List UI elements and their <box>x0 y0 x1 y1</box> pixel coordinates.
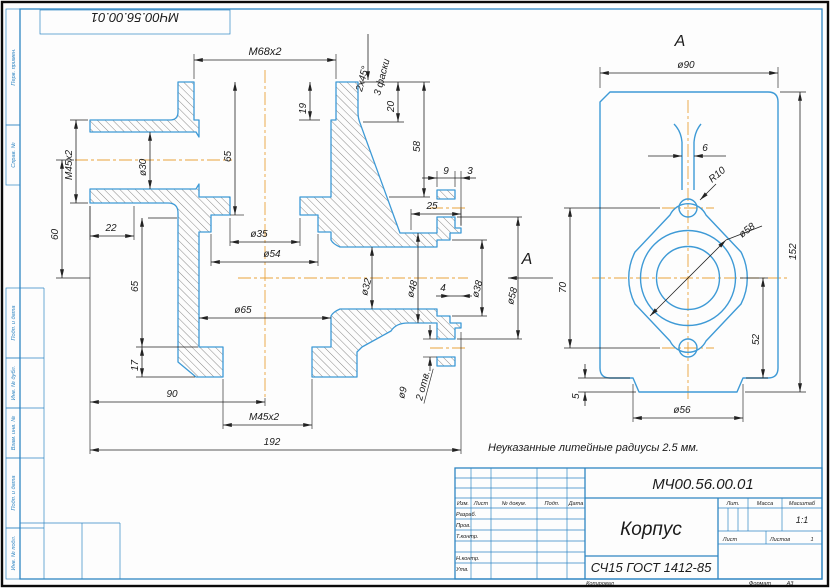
tb-scale-value: 1:1 <box>796 515 809 525</box>
stamp-doc-number: МЧ00.56.00.01 <box>91 10 179 25</box>
margin-label-podp-data-2: Подп. и дата <box>11 475 17 510</box>
tb-tkontr: Т.контр. <box>456 534 479 540</box>
dim-text-25: 25 <box>425 201 438 212</box>
tb-format-value: А3 <box>786 581 795 587</box>
dim-text-60: 60 <box>50 228 61 240</box>
tb-part-name: Корпус <box>620 519 682 540</box>
dim-text-m68x2: M68x2 <box>248 46 281 58</box>
dim-text-58: 58 <box>412 140 423 152</box>
dim-text-3: 3 <box>467 166 473 177</box>
dim-text-6: 6 <box>702 143 708 154</box>
tb-massa: Масса <box>757 501 774 507</box>
dim-text-d54: ø54 <box>263 249 281 260</box>
dim-text-d30: ø30 <box>138 158 149 176</box>
dim-text-65-low: 65 <box>130 280 141 292</box>
section-label-a: А <box>521 251 533 268</box>
margin-label-sprav-no: Справ. № <box>11 142 17 167</box>
dim-text-192: 192 <box>264 437 281 448</box>
tb-sheet: Лист <box>722 537 738 543</box>
dim-text-9: 9 <box>443 166 449 177</box>
dim-text-17: 17 <box>130 359 141 371</box>
dim-text-d90: ø90 <box>677 60 695 71</box>
dim-text-d56: ø56 <box>673 405 691 416</box>
tb-sheets: Листов <box>769 537 790 543</box>
dim-text-d65: ø65 <box>234 305 252 316</box>
dim-text-22: 22 <box>104 223 117 234</box>
dim-text-65-top: 65 <box>223 150 234 162</box>
dim-text-m45x2-left: M45x2 <box>64 150 75 180</box>
margin-label-podp-data-1: Подп. и дата <box>11 305 17 340</box>
tb-docum: № докум. <box>502 501 527 507</box>
dim-text-5: 5 <box>571 393 582 399</box>
dim-text-52: 52 <box>751 333 762 345</box>
engineering-drawing: Перв. примен. Справ. № Подп. и дата Инв.… <box>0 0 830 588</box>
dim-text-d35: ø35 <box>250 229 268 240</box>
dim-text-152: 152 <box>788 243 799 260</box>
tb-masshtab: Масштаб <box>789 501 816 507</box>
tb-prov: Пров. <box>456 523 471 529</box>
casting-note: Неуказанные литейные радиусы 2.5 мм. <box>488 442 699 454</box>
tb-data: Дата <box>568 501 584 507</box>
dim-text-20: 20 <box>386 100 397 113</box>
tb-utv: Утв. <box>455 567 469 573</box>
tb-lit: Лит. <box>725 501 739 507</box>
tb-material: СЧ15 ГОСТ 1412-85 <box>591 560 712 575</box>
dim-text-70: 70 <box>558 281 569 293</box>
tb-kopiroval: Копировал <box>586 581 615 587</box>
tb-razrab: Разраб. <box>456 512 476 518</box>
margin-label-inv-dubl: Инв. № дубл. <box>11 366 17 400</box>
tb-format-label: Формат <box>749 581 772 587</box>
tb-sheets-value: 1 <box>810 537 813 543</box>
margin-label-vzam-inv: Взам. инв. № <box>11 416 17 451</box>
margin-label-inv-podl: Инв. № подл. <box>11 536 17 571</box>
tb-podp: Подп. <box>545 501 560 507</box>
tb-list-col: Лист <box>473 501 489 507</box>
dim-text-4: 4 <box>440 283 446 294</box>
margin-label-perv-primen: Перв. примен. <box>11 48 17 85</box>
flange-top-lobe <box>437 190 455 199</box>
tb-izm: Изм. <box>457 501 469 507</box>
tb-nkontr: Н.контр. <box>456 556 480 562</box>
dim-text-m45x2-bottom: M45x2 <box>249 412 279 423</box>
dim-text-90: 90 <box>166 389 178 400</box>
dim-text-19: 19 <box>298 102 309 114</box>
flange-bottom-lobe <box>437 357 455 366</box>
tb-doc-number: МЧ00.56.00.01 <box>652 476 754 493</box>
drawing-sheet: Перв. примен. Справ. № Подп. и дата Инв.… <box>0 0 830 588</box>
view-a-label: А <box>674 33 686 50</box>
